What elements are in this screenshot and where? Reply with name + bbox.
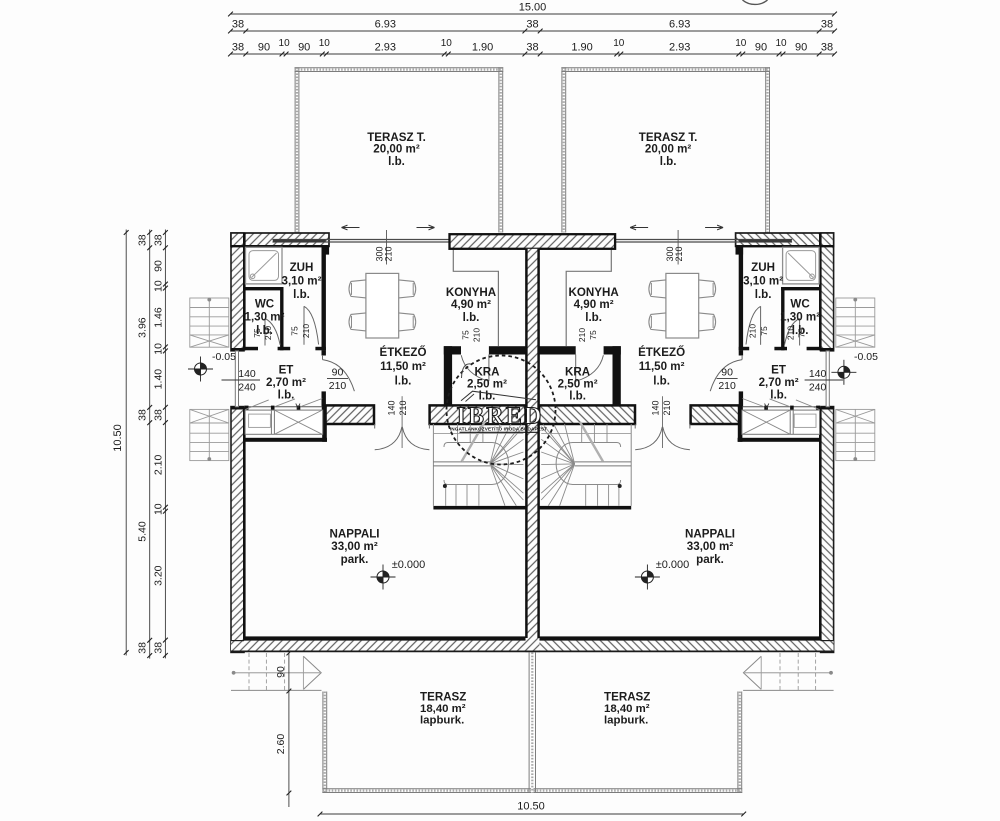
svg-text:210: 210 [674,246,684,261]
svg-text:5.40: 5.40 [137,521,149,542]
svg-text:2.10: 2.10 [153,455,165,476]
svg-text:90: 90 [275,666,287,678]
svg-text:75: 75 [252,328,262,338]
svg-text:75: 75 [290,326,300,336]
svg-text:l.b.: l.b. [770,389,787,402]
svg-text:75: 75 [461,330,471,340]
svg-text:210: 210 [263,326,273,340]
svg-text:1.40: 1.40 [153,369,165,390]
svg-text:90: 90 [153,260,165,272]
svg-text:140: 140 [651,400,661,415]
svg-text:l.b.: l.b. [660,155,677,168]
svg-text:33,00 m²: 33,00 m² [331,540,378,553]
svg-text:l.b.: l.b. [755,288,772,301]
svg-text:-0.05: -0.05 [854,351,878,363]
svg-text:140: 140 [387,400,397,415]
svg-text:ET: ET [771,364,786,377]
svg-text:lapburk.: lapburk. [604,715,648,727]
svg-text:210: 210 [384,246,394,261]
svg-text:210: 210 [301,324,311,338]
svg-text:18,40 m²: 18,40 m² [604,703,650,715]
svg-text:l.b.: l.b. [388,155,405,168]
svg-text:2.60: 2.60 [275,734,287,755]
svg-text:33,00 m²: 33,00 m² [687,540,734,553]
svg-text:75: 75 [759,326,769,336]
svg-text:90: 90 [258,42,270,54]
svg-text:210: 210 [748,324,758,338]
svg-text:3.20: 3.20 [153,565,165,586]
svg-text:210: 210 [472,328,482,342]
svg-text:38: 38 [137,234,149,246]
svg-text:1.90: 1.90 [472,42,493,54]
svg-text:10: 10 [735,38,747,49]
svg-text:1.90: 1.90 [571,42,592,54]
svg-text:2.93: 2.93 [375,42,396,54]
svg-text:3,10 m²: 3,10 m² [282,275,322,288]
svg-text:90: 90 [721,367,733,379]
svg-text:210: 210 [577,328,587,342]
svg-text:l.b.: l.b. [653,375,670,388]
svg-text:240: 240 [809,382,827,394]
svg-text:1,30 m²: 1,30 m² [780,311,820,324]
svg-text:38: 38 [821,42,833,54]
svg-text:90: 90 [795,42,807,54]
svg-text:10: 10 [775,38,787,49]
svg-text:INGATLANKÖZVETÍTŐ IRODA BUDAPE: INGATLANKÖZVETÍTŐ IRODA BUDAPEST [450,424,547,431]
svg-text:park.: park. [341,553,369,566]
svg-text:38: 38 [526,19,538,31]
svg-text:18,40 m²: 18,40 m² [420,703,466,715]
svg-text:10.50: 10.50 [112,424,124,452]
svg-text:38: 38 [137,409,149,421]
svg-text:38: 38 [153,642,165,654]
svg-text:38: 38 [137,642,149,654]
svg-text:90: 90 [298,42,310,54]
svg-text:210: 210 [329,380,347,392]
svg-text:240: 240 [238,382,256,394]
svg-text:20,00 m²: 20,00 m² [373,143,420,156]
svg-text:75: 75 [588,330,598,340]
svg-text:l.b.: l.b. [293,288,310,301]
svg-text:210: 210 [662,400,672,415]
svg-text:140: 140 [809,368,827,380]
svg-text:NAPPALI: NAPPALI [685,528,735,541]
svg-text:10: 10 [153,503,165,515]
svg-text:l.b.: l.b. [569,390,586,403]
svg-text:90: 90 [332,367,344,379]
svg-text:11,50 m²: 11,50 m² [380,360,426,373]
svg-text:38: 38 [153,234,165,246]
svg-text:l.b.: l.b. [463,311,480,324]
svg-text:ZUH: ZUH [290,261,314,274]
svg-text:10: 10 [319,38,331,49]
svg-text:38: 38 [153,409,165,421]
svg-text:10: 10 [153,343,165,355]
svg-text:10: 10 [441,38,453,49]
svg-text:l.b.: l.b. [585,311,602,324]
svg-text:4,90 m²: 4,90 m² [451,298,491,311]
svg-text:l.b.: l.b. [395,375,412,388]
svg-text:2,70 m²: 2,70 m² [759,376,799,389]
svg-text:10: 10 [279,38,291,49]
svg-text:6.93: 6.93 [669,19,690,31]
svg-text:1.46: 1.46 [153,307,165,328]
svg-text:38: 38 [232,19,244,31]
svg-text:6.93: 6.93 [375,19,396,31]
svg-text:ÉTKEZŐ: ÉTKEZŐ [638,346,685,359]
svg-text:lapburk.: lapburk. [420,715,464,727]
svg-text:20,00 m²: 20,00 m² [645,143,692,156]
svg-text:NAPPALI: NAPPALI [329,528,379,541]
svg-text:TERASZ: TERASZ [604,691,650,704]
svg-text:l.b.: l.b. [479,390,496,403]
svg-text:±0.000: ±0.000 [656,559,690,571]
svg-text:2,70 m²: 2,70 m² [266,376,306,389]
svg-text:WC: WC [255,298,275,311]
svg-text:10.50: 10.50 [517,801,545,813]
svg-text:15.00: 15.00 [519,2,547,14]
svg-text:-0.05: -0.05 [212,351,236,363]
svg-text:l.b.: l.b. [278,389,295,402]
svg-text:210: 210 [398,400,408,415]
svg-text:ÉTKEZŐ: ÉTKEZŐ [379,346,426,359]
svg-text:3.96: 3.96 [137,317,149,338]
svg-text:park.: park. [696,553,724,566]
svg-text:3,10 m²: 3,10 m² [743,275,783,288]
svg-text:ZUH: ZUH [751,261,775,274]
svg-text:WC: WC [790,298,810,311]
svg-text:10: 10 [153,280,165,292]
svg-text:4,90 m²: 4,90 m² [574,298,614,311]
svg-text:140: 140 [238,368,256,380]
svg-text:11,50 m²: 11,50 m² [639,360,685,373]
svg-text:38: 38 [821,19,833,31]
svg-text:ET: ET [279,364,294,377]
svg-text:38: 38 [526,42,538,54]
svg-text:10: 10 [613,38,625,49]
svg-text:±0.000: ±0.000 [392,559,426,571]
svg-text:210: 210 [718,380,736,392]
svg-text:TERASZ: TERASZ [420,691,466,704]
svg-text:75: 75 [797,328,807,338]
svg-text:210: 210 [786,326,796,340]
svg-text:38: 38 [232,42,244,54]
svg-text:2.93: 2.93 [669,42,690,54]
svg-text:1,30 m²: 1,30 m² [245,311,285,324]
svg-text:90: 90 [755,42,767,54]
